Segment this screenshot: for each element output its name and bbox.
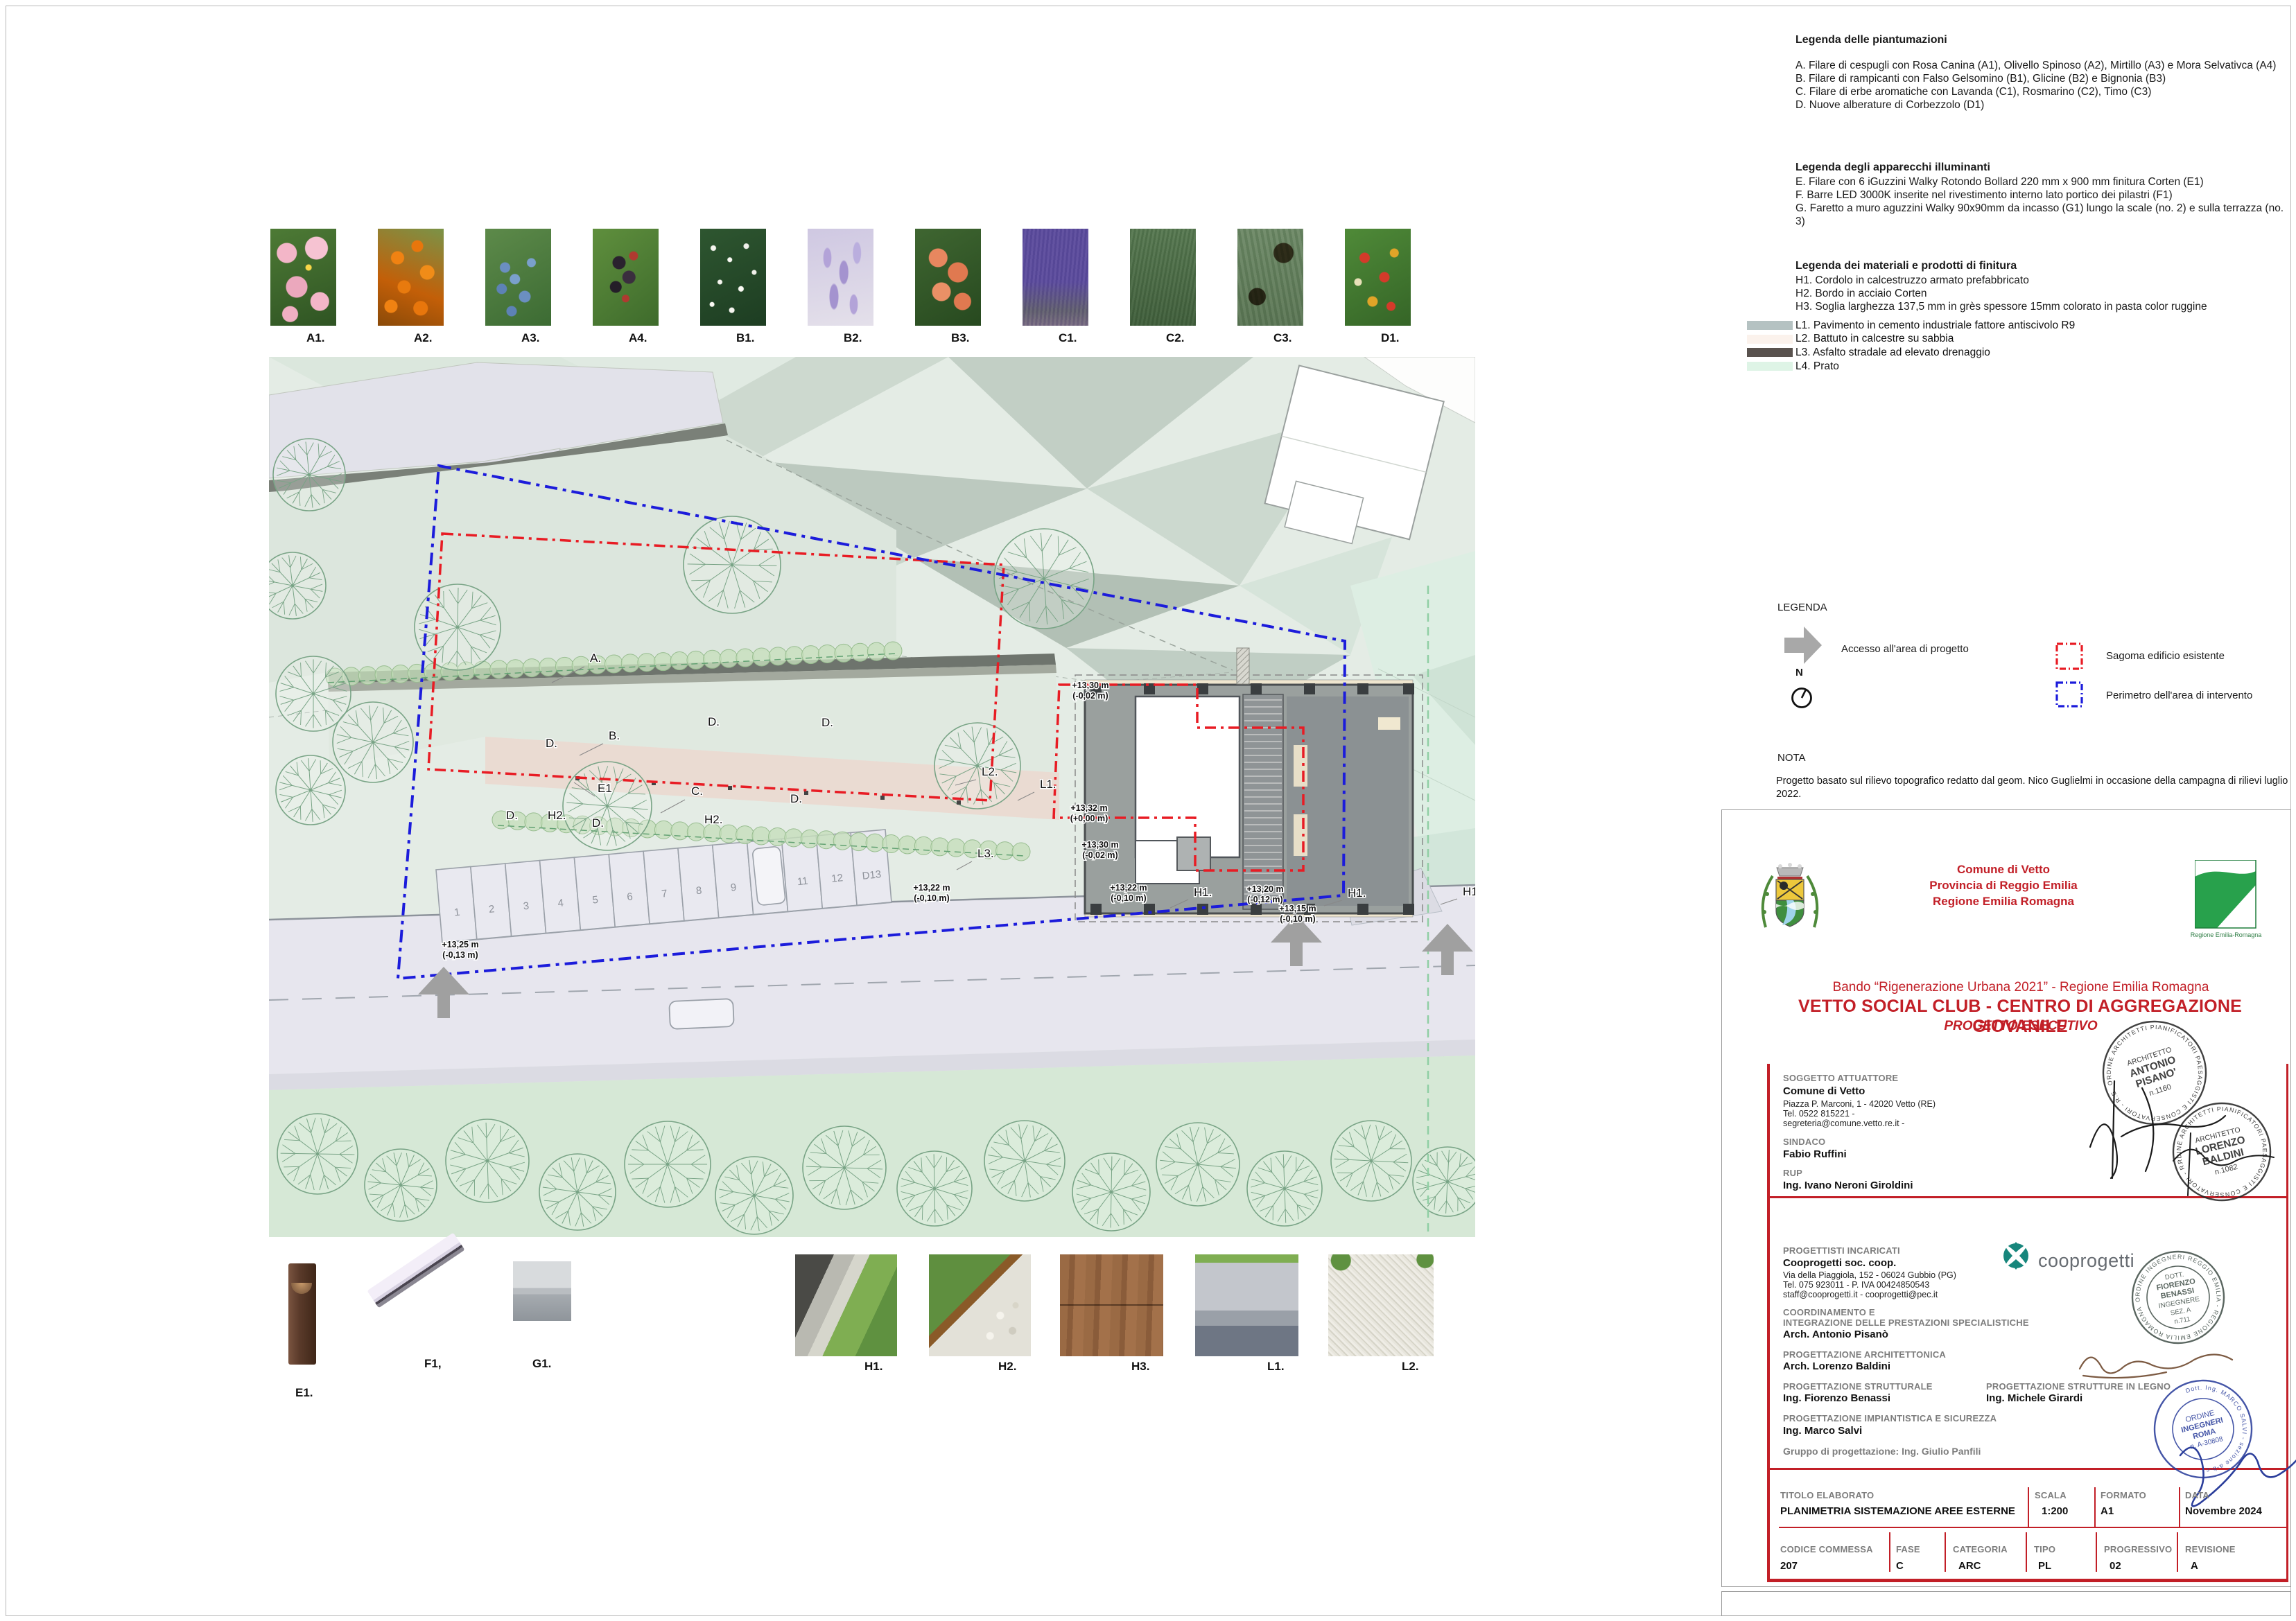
parking-number: 4 xyxy=(557,897,564,909)
plant-photo-label: B2. xyxy=(844,331,862,345)
legend-illuminanti-items: E. Filare con 6 iGuzzini Walky Rotondo B… xyxy=(1795,175,2290,228)
plant-photo-label: B1. xyxy=(736,331,754,345)
municipality-line-3: Regione Emilia Romagna xyxy=(1865,893,2142,909)
photo-texture xyxy=(1345,229,1411,326)
hedge-shrub xyxy=(704,650,722,668)
hedge-shrub xyxy=(555,657,573,675)
hedge-shrub xyxy=(358,667,376,685)
surface-label: L4. Prato xyxy=(1795,360,1839,373)
parking-stall xyxy=(609,851,650,927)
material-photo-battuto-calcestre xyxy=(1328,1254,1434,1356)
coordinamento-label-1: COORDINAMENTO E xyxy=(1783,1307,1875,1317)
photo-texture xyxy=(270,229,336,326)
parking-number: 9 xyxy=(730,882,737,894)
hedge-shrub xyxy=(523,659,541,677)
parking-number: 2 xyxy=(488,903,495,915)
tb-red-cell-line xyxy=(2177,1532,2178,1572)
surface-row: L4. Prato xyxy=(1747,360,2295,374)
legend-item: C. Filare di erbe aromatiche con Lavanda… xyxy=(1795,85,2290,98)
rup-name: Ing. Ivano Neroni Giroldini xyxy=(1783,1180,1913,1191)
plant-photo-label: A3. xyxy=(521,331,539,345)
progressivo-value: 02 xyxy=(2110,1560,2121,1572)
plan-label: A. xyxy=(590,651,601,665)
hedge-shrub xyxy=(996,842,1014,860)
legend-superfici: L1. Pavimento in cemento industriale fat… xyxy=(1747,319,2295,373)
progettisti-name: Cooprogetti soc. coop. xyxy=(1783,1257,1896,1269)
material-photo-label: H2. xyxy=(998,1360,1016,1374)
elevation-marker: +13,22 m(-0,10 m) xyxy=(913,883,950,903)
photo-texture xyxy=(1023,229,1088,326)
parking-number: 11 xyxy=(797,875,808,888)
municipality-line-1: Comune di Vetto xyxy=(1865,861,2142,877)
rup-label: RUP xyxy=(1783,1168,1802,1178)
plant-photo-label: C3. xyxy=(1273,331,1291,345)
existing-outline-icon xyxy=(2055,642,2084,671)
parking-stall xyxy=(574,855,615,930)
parking-number: 12 xyxy=(830,872,843,885)
hedge-shrub xyxy=(835,644,853,662)
plant-photo-bignonia xyxy=(915,229,981,326)
tree xyxy=(715,1157,793,1234)
legend-item: F. Barre LED 3000K inserite nel rivestim… xyxy=(1795,189,2290,202)
surface-label: L3. Asfalto stradale ad elevato drenaggi… xyxy=(1795,347,1990,359)
stamps-and-signatures: ORDINE ARCHITETTI PIANIFICATORI PAESAGGI… xyxy=(2052,991,2296,1532)
plant-photo-rosa-canina xyxy=(270,229,336,326)
parking-stall xyxy=(471,864,512,939)
parking-number: 6 xyxy=(626,891,633,903)
hedge-shrub xyxy=(931,838,949,856)
plan-label: D. xyxy=(821,716,833,729)
hedge-shrub xyxy=(769,647,787,665)
material-photo-label: L2. xyxy=(1402,1360,1419,1374)
hedge-shrub xyxy=(736,649,754,667)
tree xyxy=(625,1121,711,1207)
plan-label: D. xyxy=(546,737,557,750)
parking-number: 1 xyxy=(453,906,460,919)
tree xyxy=(984,1121,1065,1201)
legend-item: A. Filare di cespugli con Rosa Canina (A… xyxy=(1795,59,2290,72)
map-legend-title: LEGENDA xyxy=(1777,602,1827,613)
hedge-shrub xyxy=(638,654,656,672)
plan-label: L1. xyxy=(1040,778,1056,791)
progettisti-phone: Tel. 075 923011 - P. IVA 00424850543 xyxy=(1783,1280,1929,1290)
comune-vetto-crest xyxy=(1756,858,1824,938)
material-photo-label: G1. xyxy=(532,1357,551,1371)
hedge-shrub xyxy=(884,642,902,660)
fase-value: C xyxy=(1896,1560,1904,1572)
north-compass-icon xyxy=(1790,686,1814,710)
parking-stall xyxy=(678,845,719,920)
photo-texture xyxy=(915,229,981,326)
titolo-label: TITOLO ELABORATO xyxy=(1780,1490,1874,1500)
tb-red-left-border xyxy=(1767,1064,1770,1582)
legend-materiali: Legenda dei materiali e prodotti di fini… xyxy=(1795,259,2290,313)
plant-photo-label: A1. xyxy=(306,331,324,345)
hedge-shrub xyxy=(898,836,916,854)
plant-photo-label: D1. xyxy=(1381,331,1399,345)
tb-red-cell-line xyxy=(2096,1532,2097,1572)
plant-photo-olivello-spinoso xyxy=(378,229,444,326)
strutturale-label: PROGETTAZIONE STRUTTURALE xyxy=(1783,1381,1933,1392)
tb-red-cell-line xyxy=(1889,1532,1890,1572)
surface-row: L1. Pavimento in cemento industriale fat… xyxy=(1747,319,2295,333)
tree xyxy=(684,516,781,613)
hedge-shrub xyxy=(687,651,705,669)
signature xyxy=(2080,1355,2232,1378)
plan-label: D. xyxy=(790,792,802,805)
photo-texture xyxy=(700,229,766,326)
formato-label: FORMATO xyxy=(2101,1490,2146,1500)
tree xyxy=(415,584,501,670)
photo-texture xyxy=(808,229,873,326)
coordinamento-label-2: INTEGRAZIONE DELLE PRESTAZIONI SPECIALIS… xyxy=(1783,1317,2029,1328)
progettisti-email: staff@cooprogetti.it - cooprogetti@pec.i… xyxy=(1783,1290,1938,1299)
plant-photo-timo xyxy=(1237,229,1303,326)
tree xyxy=(803,1126,886,1209)
surface-swatch xyxy=(1747,348,1793,357)
fase-label: FASE xyxy=(1896,1544,1920,1554)
material-photo-bollard-corten xyxy=(288,1263,316,1365)
parking-stall xyxy=(540,857,581,933)
elevation-marker: +13,22 m(-0,10 m) xyxy=(1110,883,1147,903)
elevation-marker: +13,30 m(-0,02 m) xyxy=(1072,681,1108,701)
titolo-value: PLANIMETRIA SISTEMAZIONE AREE ESTERNE xyxy=(1780,1505,2015,1517)
scala-label: SCALA xyxy=(2035,1490,2067,1500)
legend-piantumazioni-items: A. Filare di cespugli con Rosa Canina (A… xyxy=(1795,59,2290,112)
hedge-shrub xyxy=(621,654,639,672)
arch-name: Arch. Lorenzo Baldini xyxy=(1783,1360,1890,1372)
plan-label: D. xyxy=(708,715,720,728)
plan-label: H2. xyxy=(704,813,722,826)
tb-red-cell-line xyxy=(1945,1532,1946,1572)
attuatore-label: SOGGETTO ATTUATTORE xyxy=(1783,1073,1898,1083)
material-photo-bordo-corten xyxy=(929,1254,1031,1356)
tree xyxy=(446,1119,529,1202)
regione-emilia-romagna-logo xyxy=(2195,860,2257,929)
legend-item: G. Faretto a muro aguzzini Walky 90x90mm… xyxy=(1795,202,2290,228)
revisione-value: A xyxy=(2191,1560,2198,1572)
existing-label: Sagoma edificio esistente xyxy=(2106,650,2225,662)
parking-number: 8 xyxy=(695,884,702,897)
bollard-e1 xyxy=(728,786,732,790)
tree xyxy=(1156,1123,1240,1206)
parking-stall xyxy=(781,836,822,911)
tree xyxy=(277,1114,358,1194)
attuatore-address: Piazza P. Marconi, 1 - 42020 Vetto (RE) xyxy=(1783,1099,1936,1109)
material-photo-label: E1. xyxy=(295,1386,313,1400)
legend-piantumazioni-title: Legenda delle piantumazioni xyxy=(1795,33,2290,46)
perimeter-label: Perimetro dell'area di intervento xyxy=(2106,690,2252,701)
hedge-shrub xyxy=(704,824,722,842)
municipality-lines: Comune di Vetto Provincia di Reggio Emil… xyxy=(1865,861,2142,909)
parking-number: 7 xyxy=(661,888,668,900)
revisione-label: REVISIONE xyxy=(2185,1544,2236,1554)
plant-photo-label: C1. xyxy=(1059,331,1077,345)
hedge-shrub xyxy=(654,821,672,839)
data-label: DATA xyxy=(2185,1490,2209,1500)
plant-photo-mirtillo xyxy=(485,229,551,326)
parking-number: 3 xyxy=(523,900,530,913)
hedge-shrub xyxy=(867,642,885,660)
legend-item: D. Nuove alberature di Corbezzolo (D1) xyxy=(1795,98,2290,112)
hedge-shrub xyxy=(833,832,851,850)
hedge-shrub xyxy=(914,836,932,855)
photo-texture xyxy=(1130,229,1196,326)
tree xyxy=(994,529,1094,629)
plan-label: H2. xyxy=(548,809,566,822)
material-photo-soglia-gres xyxy=(1060,1254,1163,1356)
tree xyxy=(1331,1121,1411,1201)
hedge-shrub xyxy=(687,823,705,841)
photo-texture xyxy=(593,229,659,326)
municipality-line-2: Provincia di Reggio Emilia xyxy=(1865,877,2142,893)
site-plan: 123456789101112D13 A.B.C.E1D.D.D.D.D.D.H… xyxy=(269,357,1475,1237)
photo-texture xyxy=(378,229,444,326)
plant-photo-label: A4. xyxy=(629,331,647,345)
surface-swatch xyxy=(1747,321,1793,330)
elevation-marker: +13,20 m(-0,12 m) xyxy=(1246,884,1283,904)
formato-value: A1 xyxy=(2101,1505,2114,1517)
attuatore-email: segreteria@comune.vetto.re.it - xyxy=(1783,1119,1904,1128)
nota-text: Progetto basato sul rilievo topografico … xyxy=(1776,775,2290,801)
photo-texture xyxy=(485,229,551,326)
tb-red-bottom-border xyxy=(1767,1579,2288,1582)
hedge-shrub xyxy=(768,827,786,845)
plan-label: B. xyxy=(609,729,620,742)
arch-label: PROGETTAZIONE ARCHITETTONICA xyxy=(1783,1349,1946,1360)
tree xyxy=(1413,1147,1475,1216)
parking-stall xyxy=(643,848,684,924)
legend-illuminanti: Legenda degli apparecchi illuminanti E. … xyxy=(1795,161,2290,228)
plan-label: L2. xyxy=(982,765,998,778)
gruppo-progettazione: Gruppo di progettazione: Ing. Giulio Pan… xyxy=(1783,1446,1981,1457)
hedge-shrub xyxy=(605,655,623,673)
surface-row: L2. Battuto in calcestre su sabbia xyxy=(1747,333,2295,347)
coordinamento-name: Arch. Antonio Pisanò xyxy=(1783,1329,1888,1340)
hedge-shrub xyxy=(802,646,820,664)
commessa-value: 207 xyxy=(1780,1560,1798,1572)
plan-label: H1. xyxy=(1194,886,1212,899)
hedge-shrub xyxy=(392,665,410,683)
plan-label: H1. xyxy=(1348,886,1366,900)
material-photo-pavimento-cemento xyxy=(1195,1254,1298,1356)
sindaco-label: SINDACO xyxy=(1783,1137,1825,1147)
surface-swatch xyxy=(1747,335,1793,344)
plan-label: C. xyxy=(691,785,703,798)
title-block-footer-strip xyxy=(1721,1591,2291,1616)
material-photo-cordolo-calcestruzzo xyxy=(795,1254,897,1356)
surface-swatch xyxy=(1747,362,1793,371)
hedge-shrub xyxy=(671,822,689,840)
legend-item: H2. Bordo in acciaio Corten xyxy=(1795,287,2290,300)
north-letter: N xyxy=(1795,667,1803,678)
sindaco-name: Fabio Ruffini xyxy=(1783,1148,1847,1160)
hedge-shrub xyxy=(506,660,524,678)
material-photo-label: H3. xyxy=(1131,1360,1149,1374)
legend-materiali-title: Legenda dei materiali e prodotti di fini… xyxy=(1795,259,2290,272)
material-photo-label: F1, xyxy=(424,1357,442,1371)
hedge-shrub xyxy=(720,649,738,667)
material-photo-label: H1. xyxy=(864,1360,882,1374)
hedge-shrub xyxy=(539,658,557,676)
plant-photo-rosmarino xyxy=(1130,229,1196,326)
plan-label: E1 xyxy=(598,782,612,795)
cooprogetti-logo-icon xyxy=(1999,1242,2033,1271)
tree xyxy=(539,1154,616,1230)
plant-photo-corbezzolo xyxy=(1345,229,1411,326)
hedge-shrub xyxy=(670,652,688,670)
commessa-label: CODICE COMMESSA xyxy=(1780,1544,1873,1554)
categoria-label: CATEGORIA xyxy=(1953,1544,2008,1554)
strutturale-name: Ing. Fiorenzo Benassi xyxy=(1783,1392,1890,1404)
parking-stall xyxy=(713,842,754,918)
bollard-e1 xyxy=(957,800,961,805)
hedge-shrub xyxy=(818,645,836,663)
tree xyxy=(365,1149,437,1221)
legend-piantumazioni: Legenda delle piantumazioni A. Filare di… xyxy=(1795,33,2290,112)
legend-item: E. Filare con 6 iGuzzini Walky Rotondo B… xyxy=(1795,175,2290,189)
plant-photo-lavanda xyxy=(1023,229,1088,326)
access-label: Accesso all'area di progetto xyxy=(1841,643,1969,655)
parking-stall xyxy=(505,861,546,936)
nota-title: NOTA xyxy=(1777,752,1806,764)
hedge-shrub xyxy=(375,666,393,684)
parking-stall xyxy=(436,867,477,943)
hedge-shrub xyxy=(882,835,901,853)
parked-car xyxy=(752,846,785,906)
hedge-shrub xyxy=(817,831,835,849)
material-photo-label: L1. xyxy=(1267,1360,1285,1374)
plant-photo-glicine xyxy=(808,229,873,326)
hedge-shrub xyxy=(753,648,771,666)
elevation-marker: +13,32 m(+0,00 m) xyxy=(1070,803,1108,823)
data-value: Novembre 2024 xyxy=(2185,1505,2262,1517)
tree xyxy=(934,723,1020,809)
hedge-shrub xyxy=(654,653,672,671)
impiantistica-label: PROGETTAZIONE IMPIANTISTICA E SICUREZZA xyxy=(1783,1413,1997,1423)
plan-label: L3. xyxy=(977,847,994,860)
legend-item: B. Filare di rampicanti con Falso Gelsom… xyxy=(1795,72,2290,85)
plan-label: H1. xyxy=(1463,885,1475,898)
attuatore-name: Comune di Vetto xyxy=(1783,1085,1865,1097)
plant-photo-label: C2. xyxy=(1166,331,1184,345)
hedge-shrub xyxy=(850,833,868,851)
tipo-value: PL xyxy=(2038,1560,2051,1572)
hedge-shrub xyxy=(1012,843,1030,861)
plant-photo-label: B3. xyxy=(951,331,969,345)
progressivo-label: PROGRESSIVO xyxy=(2104,1544,2172,1554)
legend-illuminanti-title: Legenda degli apparecchi illuminanti xyxy=(1795,161,2290,174)
hedge-shrub xyxy=(866,834,884,852)
attuatore-phone: Tel. 0522 815221 - xyxy=(1783,1109,1855,1119)
legend-materiali-items: H1. Cordolo in calcestruzzo armato prefa… xyxy=(1795,274,2290,313)
plan-label: D. xyxy=(506,809,518,822)
tree xyxy=(897,1151,972,1226)
elevation-marker: +13,30 m(-0,02 m) xyxy=(1081,840,1118,860)
svg-text:n.711: n.711 xyxy=(2174,1315,2191,1326)
tipo-label: TIPO xyxy=(2034,1544,2055,1554)
tree xyxy=(1247,1151,1322,1226)
hedge-shrub xyxy=(720,825,738,843)
building xyxy=(1075,648,1423,922)
hedge-shrub xyxy=(801,830,819,848)
stamp-benassi: ORDINE INGEGNERI REGGIO EMILIA - REGIONE… xyxy=(2125,1245,2232,1351)
scala-value: 1:200 xyxy=(2042,1505,2068,1517)
bollard-e1 xyxy=(880,796,885,800)
hedge-shrub xyxy=(490,660,508,678)
parking-number: D13 xyxy=(862,868,882,882)
tree xyxy=(276,755,345,825)
plant-photo-mora-selvatica xyxy=(593,229,659,326)
tree xyxy=(333,702,413,782)
surface-label: L2. Battuto in calcestre su sabbia xyxy=(1795,333,1954,345)
hedge-shrub xyxy=(752,827,770,845)
material-photo-faretto-walky xyxy=(513,1261,571,1321)
hedge-shrub xyxy=(785,829,803,847)
hedge-shrub xyxy=(736,826,754,844)
hedge-shrub xyxy=(851,643,869,661)
parking-number: 5 xyxy=(592,894,599,906)
access-arrow-icon xyxy=(1784,626,1823,666)
legend-item: H3. Soglia larghezza 137,5 mm in grès sp… xyxy=(1795,300,2290,313)
progettisti-label: PROGETTISTI INCARICATI xyxy=(1783,1245,1900,1256)
tree xyxy=(1072,1153,1150,1231)
plant-photo-falso-gelsomino xyxy=(700,229,766,326)
perimeter-outline-icon xyxy=(2055,681,2084,710)
elevation-marker: +13,15 m(-0,10 m) xyxy=(1279,904,1316,924)
regione-logo-caption: Regione Emilia-Romagna xyxy=(2185,931,2267,938)
hedge-shrub xyxy=(785,647,803,665)
legend-item: H1. Cordolo in calcestruzzo armato prefa… xyxy=(1795,274,2290,287)
tb-red-cell-line xyxy=(2026,1532,2027,1572)
surface-label: L1. Pavimento in cemento industriale fat… xyxy=(1795,319,2075,332)
photo-texture xyxy=(1237,229,1303,326)
plan-label: D. xyxy=(592,816,604,830)
surface-row: L3. Asfalto stradale ad elevato drenaggi… xyxy=(1747,346,2295,360)
tree xyxy=(563,762,652,850)
tb-red-cell-line xyxy=(2028,1487,2029,1527)
impiantistica-name: Ing. Marco Salvi xyxy=(1783,1425,1862,1437)
hedge-shrub xyxy=(947,839,965,857)
elevation-marker: +13,25 m(-0,13 m) xyxy=(442,940,478,960)
tree xyxy=(273,439,345,511)
progettisti-address: Via della Piaggiola, 152 - 06024 Gubbio … xyxy=(1783,1270,1956,1280)
categoria-value: ARC xyxy=(1958,1560,1981,1572)
plant-photo-label: A2. xyxy=(414,331,432,345)
